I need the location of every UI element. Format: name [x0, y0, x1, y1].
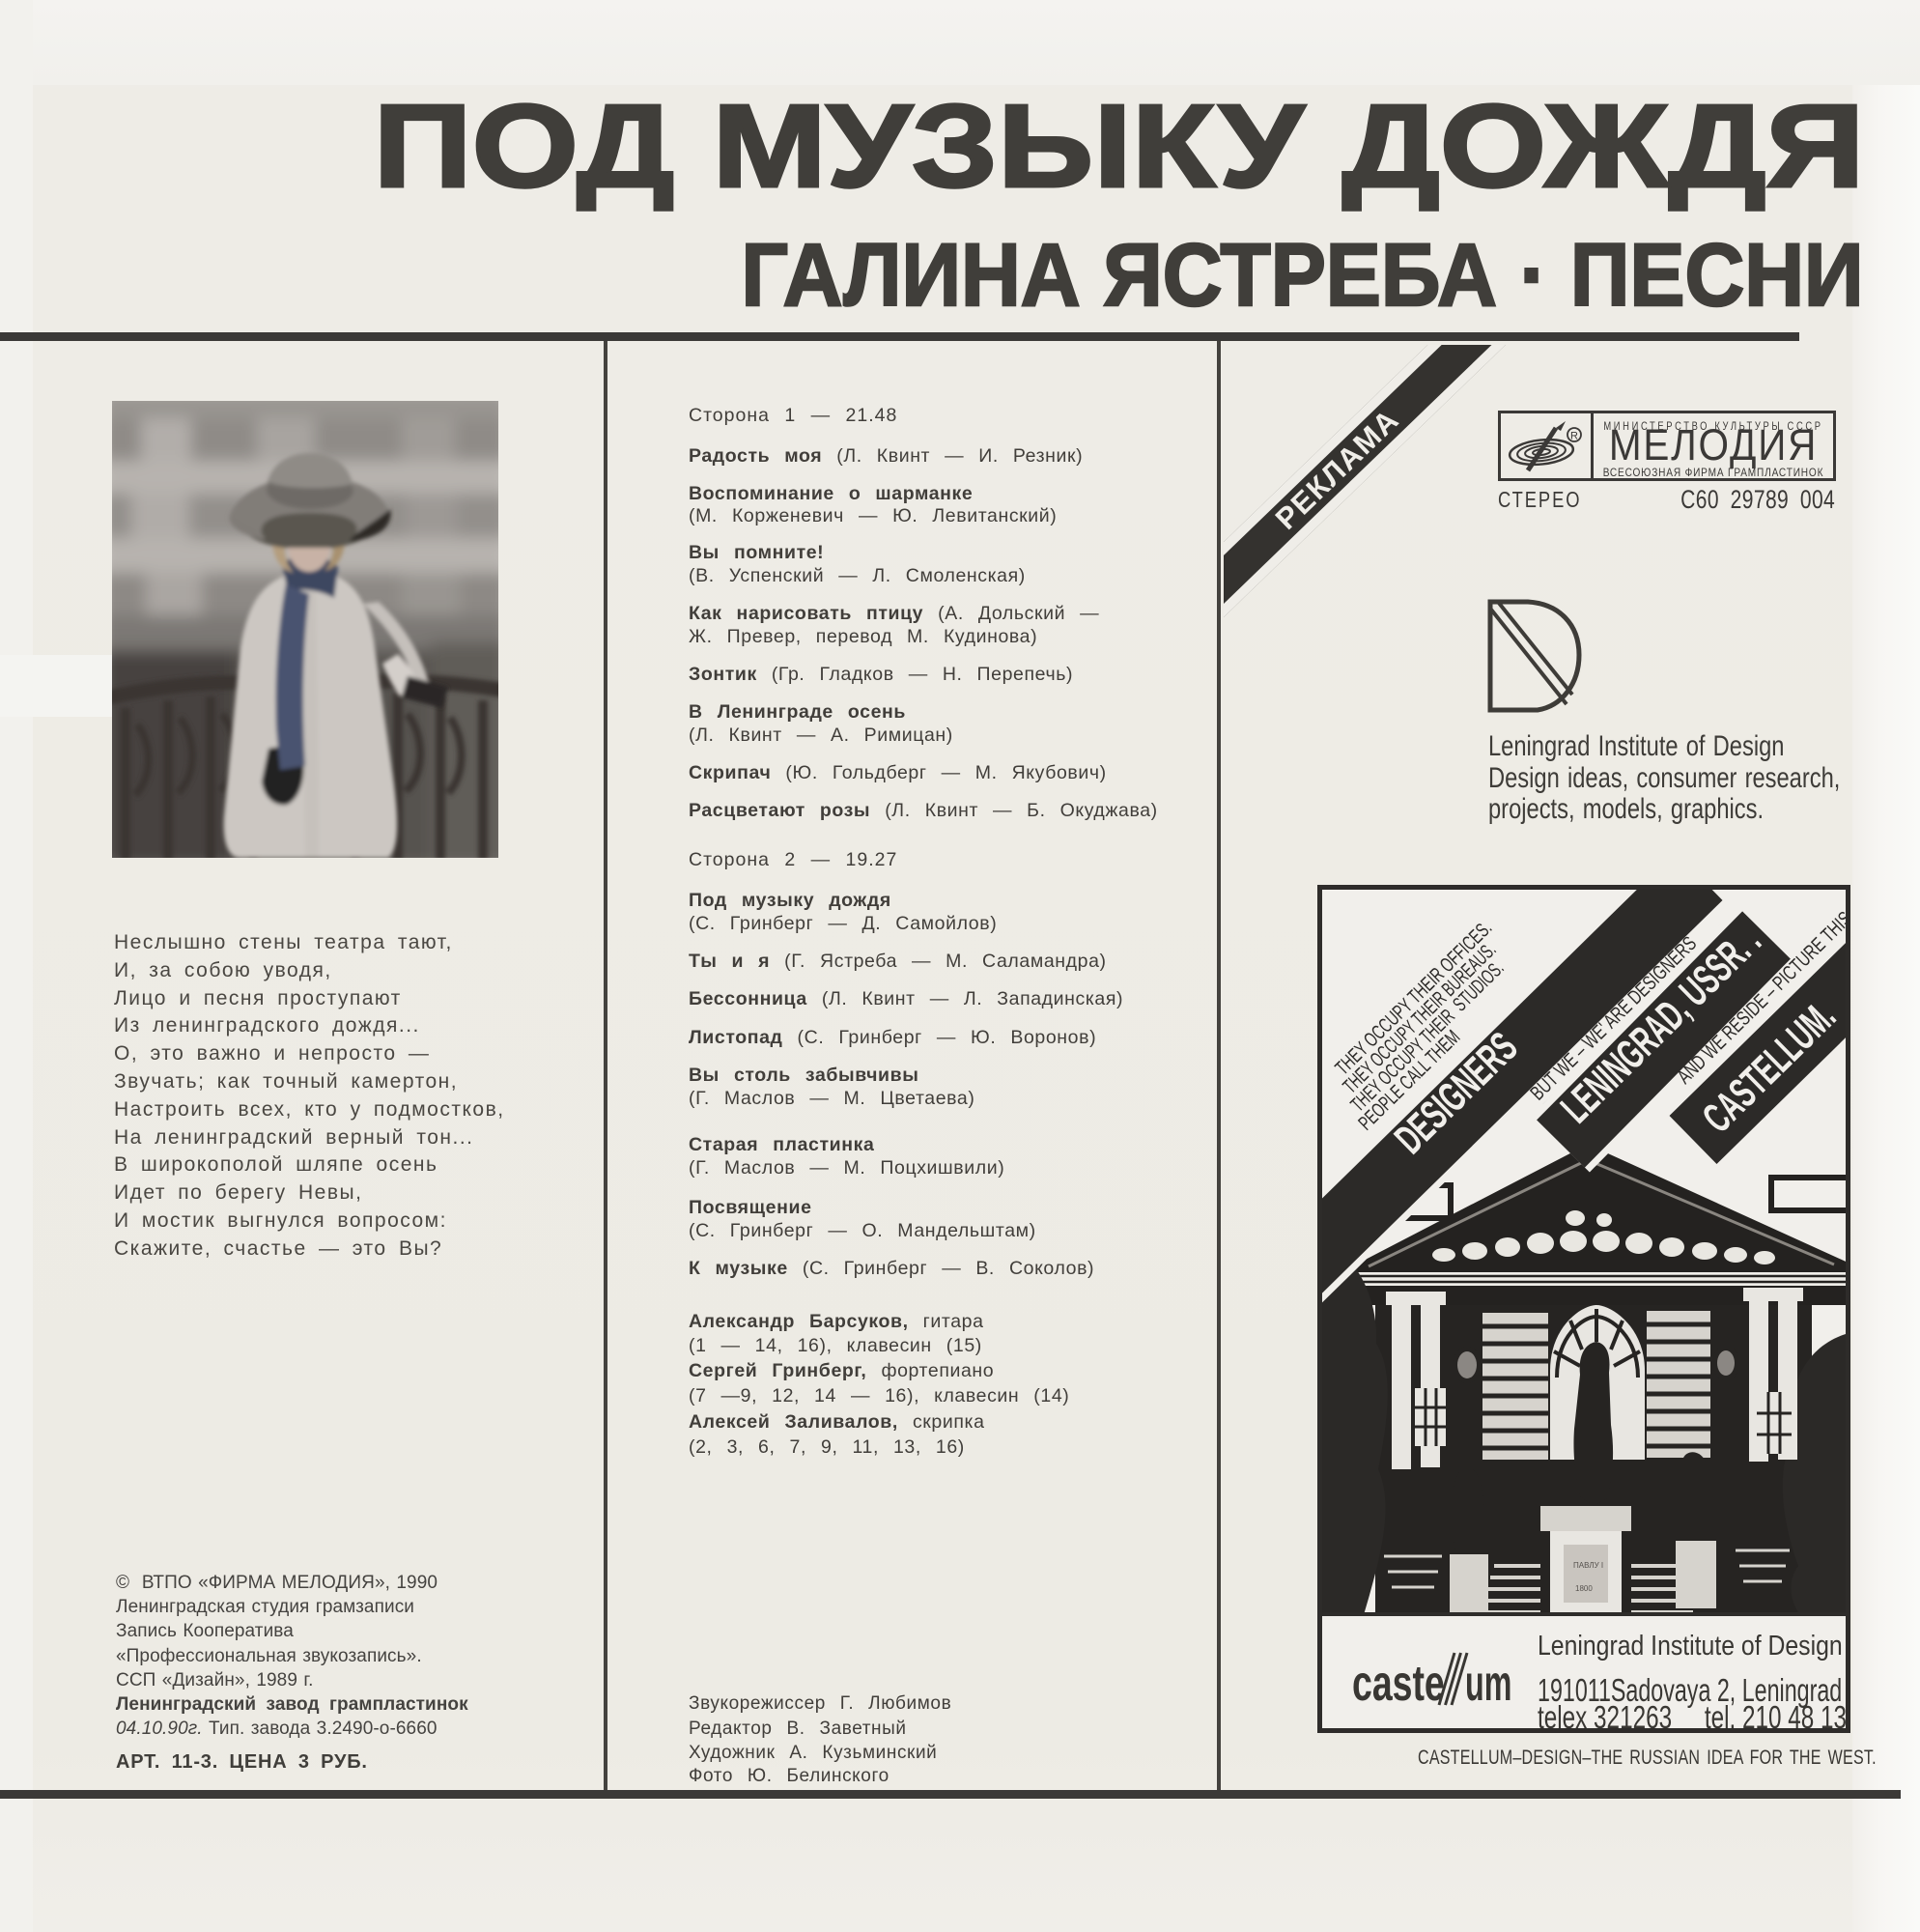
svg-text:ПАВЛУ I: ПАВЛУ I: [1573, 1561, 1603, 1570]
svg-text:R: R: [1570, 431, 1578, 442]
svg-text:1800: 1800: [1575, 1584, 1593, 1593]
